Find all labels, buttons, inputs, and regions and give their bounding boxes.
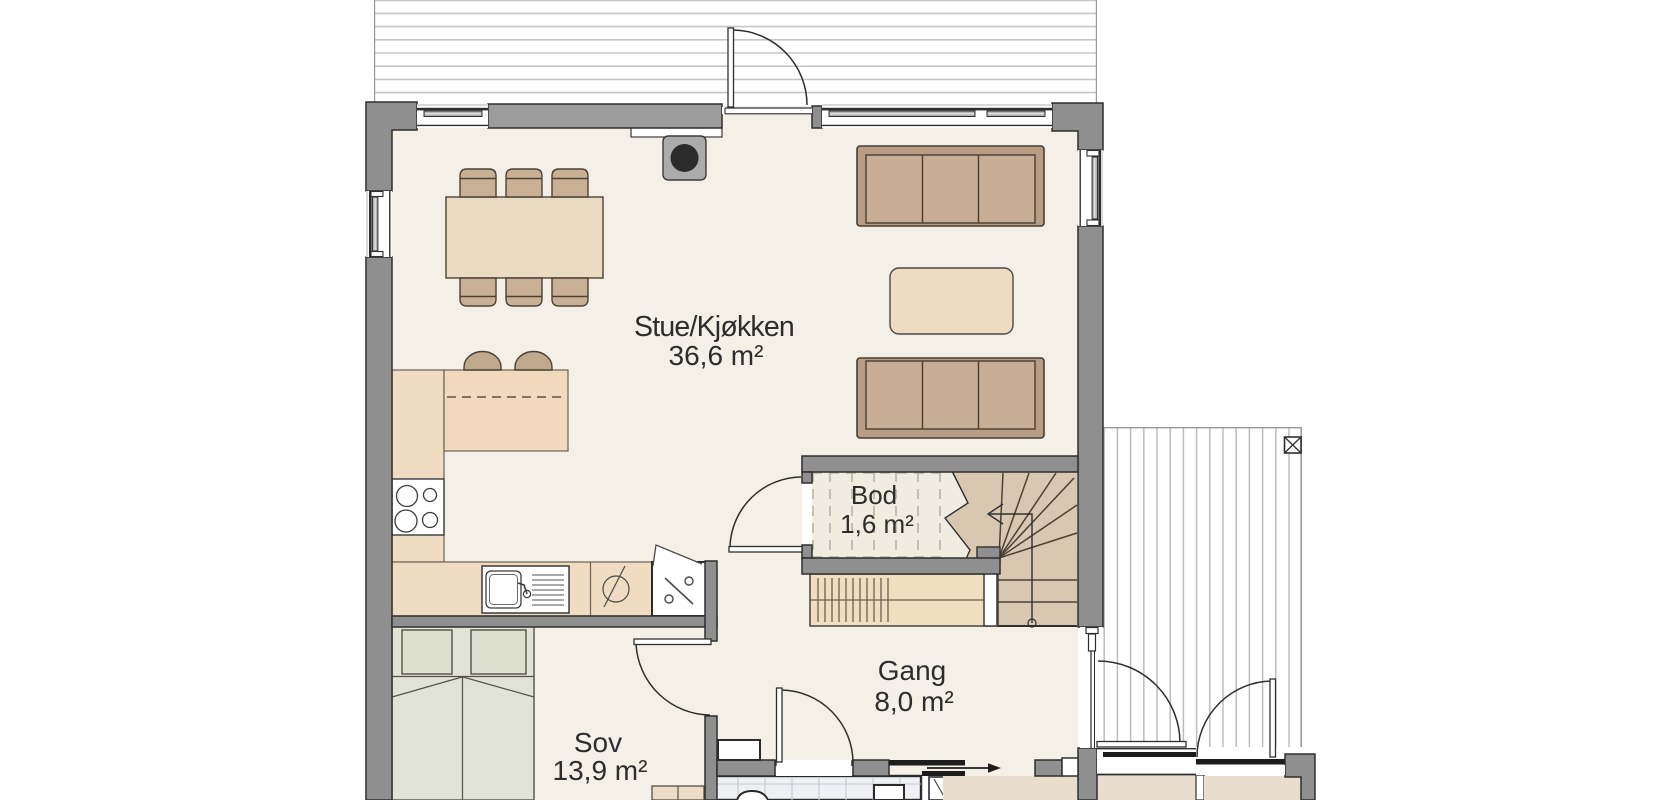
- svg-text:Stue/Kjøkken: Stue/Kjøkken: [634, 311, 794, 343]
- svg-text:1,6 m²: 1,6 m²: [840, 509, 914, 539]
- svg-text:8,0 m²: 8,0 m²: [874, 686, 953, 717]
- svg-text:Bod: Bod: [851, 480, 897, 510]
- svg-text:Sov: Sov: [574, 727, 622, 758]
- svg-text:13,9 m²: 13,9 m²: [553, 755, 648, 786]
- svg-text:Gang: Gang: [878, 655, 947, 686]
- svg-text:36,6 m²: 36,6 m²: [669, 340, 764, 371]
